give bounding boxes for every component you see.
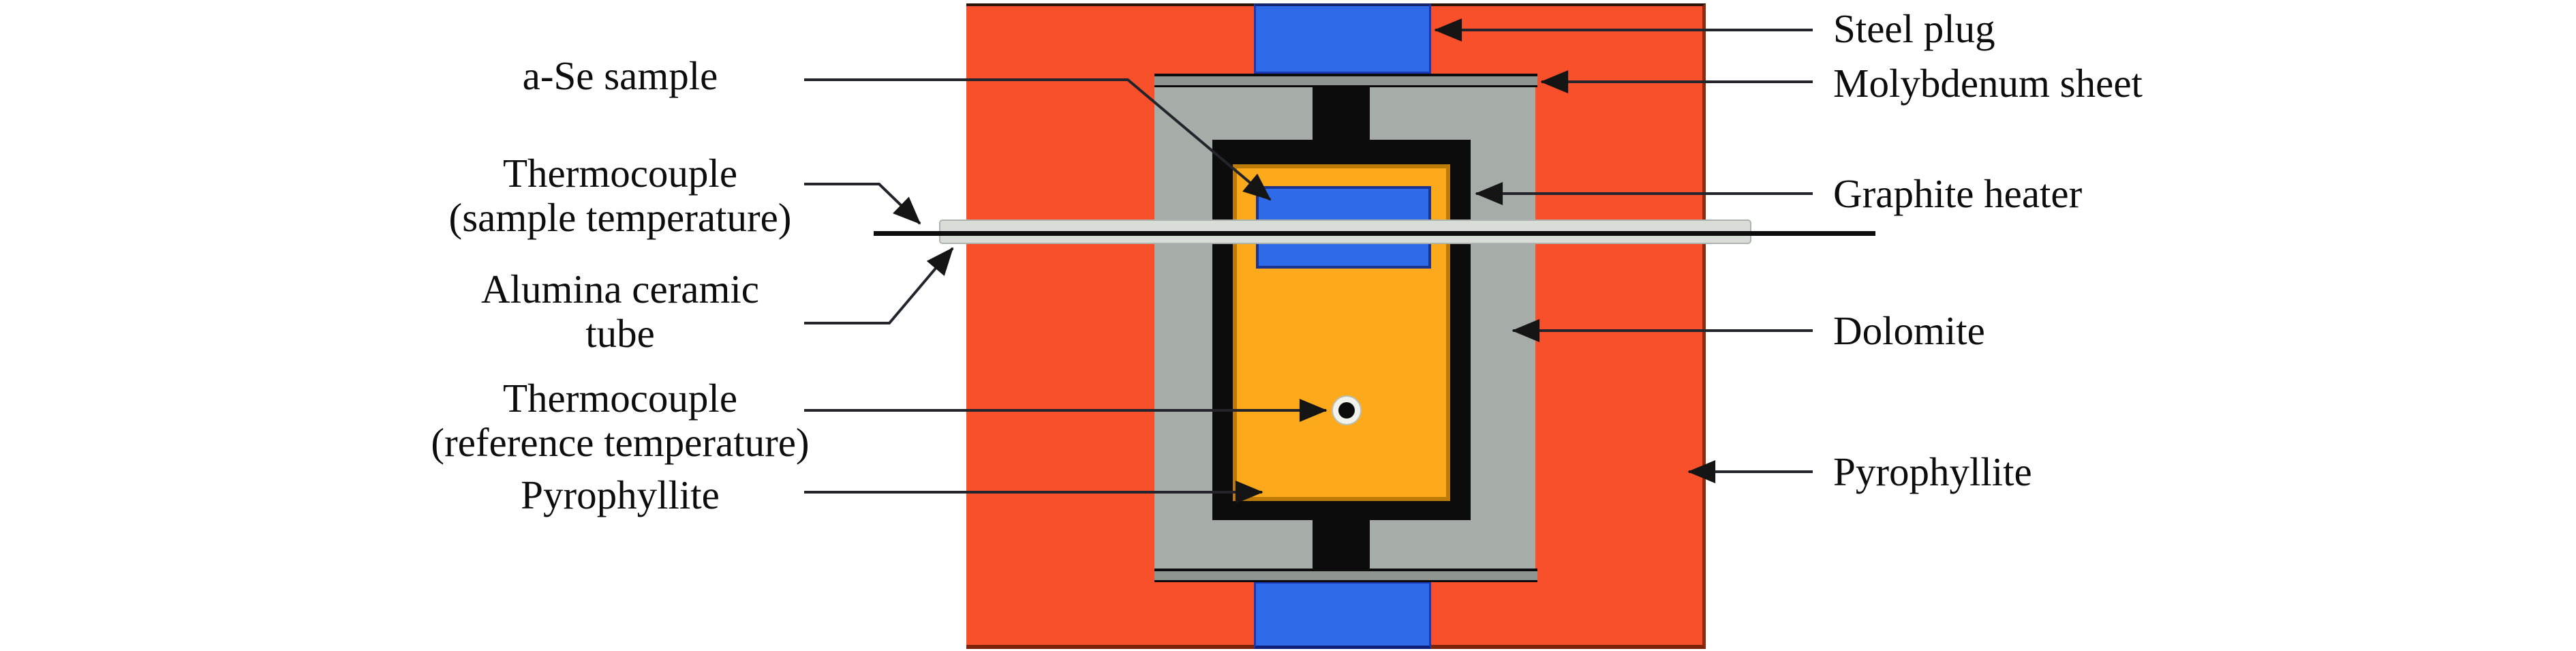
pressure-cell-diagram: a-Se sample Thermocouple (sample tempera… bbox=[0, 0, 2576, 651]
label-thermocouple-sample-line1: Thermocouple bbox=[395, 151, 845, 196]
label-alumina-line2: tube bbox=[395, 312, 845, 356]
label-dolomite-text: Dolomite bbox=[1833, 308, 1985, 353]
label-pyrophyllite-left-text: Pyrophyllite bbox=[521, 472, 720, 517]
label-graphite-heater-text: Graphite heater bbox=[1833, 171, 2082, 216]
label-thermocouple-sample: Thermocouple (sample temperature) bbox=[395, 151, 845, 240]
label-thermocouple-reference: Thermocouple (reference temperature) bbox=[395, 376, 845, 465]
label-molybdenum-sheet-text: Molybdenum sheet bbox=[1833, 61, 2143, 106]
label-pyrophyllite-right-text: Pyrophyllite bbox=[1833, 449, 2032, 494]
leader-lines bbox=[0, 0, 2576, 651]
label-pyrophyllite-left: Pyrophyllite bbox=[395, 473, 845, 517]
label-graphite-heater: Graphite heater bbox=[1833, 172, 2082, 216]
label-thermocouple-ref-line2: (reference temperature) bbox=[395, 421, 845, 465]
label-molybdenum-sheet: Molybdenum sheet bbox=[1833, 61, 2143, 106]
label-thermocouple-sample-line2: (sample temperature) bbox=[395, 196, 845, 240]
label-pyrophyllite-right: Pyrophyllite bbox=[1833, 450, 2032, 494]
label-alumina-line1: Alumina ceramic bbox=[395, 267, 845, 312]
label-alumina-ceramic-tube: Alumina ceramic tube bbox=[395, 267, 845, 356]
label-thermocouple-ref-line1: Thermocouple bbox=[395, 376, 845, 421]
label-a-se-sample: a-Se sample bbox=[395, 54, 845, 98]
leader-a-se-sample bbox=[804, 80, 1270, 200]
label-steel-plug: Steel plug bbox=[1833, 7, 1995, 51]
label-steel-plug-text: Steel plug bbox=[1833, 6, 1995, 51]
label-a-se-sample-text: a-Se sample bbox=[523, 53, 718, 98]
label-dolomite: Dolomite bbox=[1833, 309, 1985, 353]
